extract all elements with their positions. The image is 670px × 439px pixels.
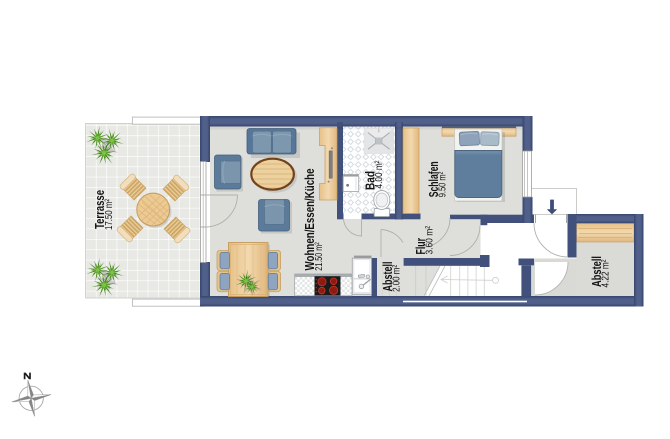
svg-text:3.60 m²: 3.60 m² [425, 225, 436, 254]
svg-text:4.22 m²: 4.22 m² [601, 259, 612, 288]
svg-text:2.00 m²: 2.00 m² [392, 264, 403, 292]
svg-text:21.50 m²: 21.50 m² [314, 242, 325, 271]
svg-text:9.50 m²: 9.50 m² [438, 171, 449, 197]
svg-text:4.00 m²: 4.00 m² [374, 160, 385, 189]
svg-text:17.50 m²: 17.50 m² [104, 198, 115, 230]
